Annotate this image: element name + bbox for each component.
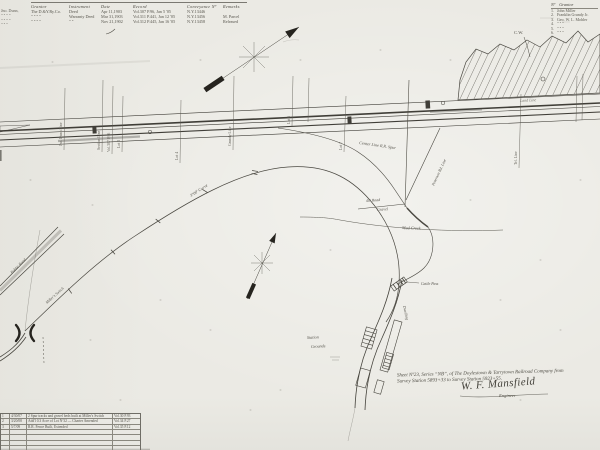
table-row bbox=[1, 440, 140, 445]
crossing-label: Section Line bbox=[97, 130, 101, 150]
building bbox=[356, 368, 371, 388]
table-cell bbox=[1, 446, 9, 450]
grantor-list: Nº Grantor 1.John Miller 2.Franklin Grun… bbox=[551, 2, 598, 36]
col-header: Grantor bbox=[559, 2, 573, 7]
crossing-label: Lot 7 bbox=[339, 142, 343, 150]
compass-north-center bbox=[246, 232, 279, 299]
table-cell: 2 bbox=[1, 419, 9, 423]
north-arrowhead bbox=[269, 232, 279, 244]
land-line-label: Land Line bbox=[519, 97, 537, 103]
crossing-label: Grundy Line bbox=[228, 126, 232, 146]
table-cell bbox=[9, 435, 26, 439]
station-grounds-label: Station bbox=[307, 334, 319, 340]
table-cell: Nov 21,1902 bbox=[101, 19, 131, 24]
crossing-label: Tel. Line bbox=[514, 151, 518, 165]
needle-bar bbox=[246, 283, 256, 299]
table-cell bbox=[9, 441, 26, 445]
wye-loop-track bbox=[25, 167, 399, 331]
table-cell: Vol.34 P.27 bbox=[112, 419, 140, 423]
dwelling-label: Dwelling bbox=[402, 304, 410, 320]
main-railroad bbox=[0, 94, 600, 147]
table-cell bbox=[112, 441, 140, 445]
spur-centerline-label: Center Line R.R. Spur bbox=[359, 140, 397, 150]
gravel-label: Gravel bbox=[377, 206, 389, 212]
table-cell bbox=[26, 430, 112, 434]
creek-label: Mud Creek bbox=[401, 225, 421, 231]
station-grounds-label: Grounds bbox=[311, 343, 326, 349]
crossing-label: Lot 3 bbox=[117, 140, 121, 148]
conveyance-table: Grantor Instrument Date Record Conveyanc… bbox=[31, 2, 247, 24]
compass-north-top bbox=[203, 24, 301, 93]
revision-table: 14/30/072 Spur tracks and gravel beds bu… bbox=[0, 413, 141, 450]
table-cell: 3/20/08 bbox=[9, 419, 26, 423]
needle-bar bbox=[203, 76, 224, 93]
table-cell: 1 bbox=[1, 414, 9, 418]
table-cell: Vol.312 P.445, Jan 16 '05 bbox=[133, 19, 185, 24]
peterson-line-label: Peterson Rd. Line bbox=[430, 158, 447, 187]
table-cell: Vol.30 P.93 bbox=[112, 414, 140, 418]
cattle-pass-label: Cattle Pass bbox=[421, 282, 439, 286]
junction-switch bbox=[0, 325, 44, 363]
table-cell: 5/7/09 bbox=[9, 425, 26, 429]
table-cell bbox=[26, 441, 112, 445]
table-cell bbox=[112, 435, 140, 439]
cw-label: C.W. bbox=[514, 30, 523, 35]
station-area bbox=[330, 277, 419, 441]
grantor-num: 6. bbox=[551, 31, 554, 36]
margin-notes: Jno. Dunn, " " " " " " " " " " " bbox=[1, 9, 31, 28]
table-cell: 4/30/07 bbox=[9, 414, 26, 418]
table-row bbox=[1, 445, 140, 450]
table-row: 35/7/09R.R. Fence Built, ExtendedVol.35 … bbox=[1, 424, 140, 429]
list-item: 6." " " bbox=[551, 31, 598, 36]
crossing-label: Lot 6 bbox=[287, 116, 291, 124]
map-text-labels: C.W. Land Line Center Line R.R. Spur 3°0… bbox=[8, 30, 536, 349]
col-header: Nº bbox=[551, 2, 555, 7]
crossing-label: Vol.307 P.96 bbox=[107, 133, 111, 152]
spur-track bbox=[278, 128, 440, 284]
table-row bbox=[1, 434, 140, 439]
table-cell bbox=[112, 430, 140, 434]
table-cell bbox=[9, 446, 26, 450]
table-cell bbox=[1, 435, 9, 439]
table-cell: N.Y.13458 bbox=[187, 19, 221, 24]
table-cell bbox=[112, 446, 140, 450]
table-row bbox=[1, 429, 140, 434]
table-cell bbox=[1, 430, 9, 434]
curve-note-label: 3°00' Curve bbox=[189, 183, 209, 198]
table-cell: Released bbox=[223, 19, 251, 24]
table-cell bbox=[26, 435, 112, 439]
grantor-name: " " " bbox=[557, 31, 564, 36]
table-row: 23/20/08Add'l 0.3 Acre of Lot Nº32 — Cha… bbox=[1, 418, 140, 423]
table-cell: Add'l 0.3 Acre of Lot Nº32 — Charter Ame… bbox=[26, 419, 112, 423]
engineer-signature-role: Engineer bbox=[499, 393, 516, 398]
table-cell: 2 Spur tracks and gravel beds built at M… bbox=[26, 414, 112, 418]
road-40-label: 40' Road bbox=[366, 197, 382, 203]
crossing-label: Lot 4 bbox=[175, 152, 179, 160]
table-cell: " " " " bbox=[31, 19, 67, 24]
table-cell: " " bbox=[69, 19, 99, 24]
scanned-survey-map-sheet: C.W. Land Line Center Line R.R. Spur 3°0… bbox=[0, 0, 600, 450]
table-cell bbox=[9, 430, 26, 434]
public-road bbox=[0, 227, 64, 295]
north-arrowhead bbox=[285, 24, 301, 38]
building bbox=[374, 380, 384, 394]
table-row: " " " " " " Nov 21,1902 Vol.312 P.445, J… bbox=[31, 19, 247, 24]
crossing-label: Jno. Dunn Line bbox=[59, 122, 63, 146]
table-cell: Vol.35 P.12 bbox=[112, 425, 140, 429]
table-row: 14/30/072 Spur tracks and gravel beds bu… bbox=[1, 414, 140, 418]
table-cell: 3 bbox=[1, 425, 9, 429]
margin-note: " " " bbox=[1, 23, 31, 28]
table-cell bbox=[1, 441, 9, 445]
table-cell: R.R. Fence Built, Extended bbox=[26, 425, 112, 429]
table-cell bbox=[26, 446, 112, 450]
